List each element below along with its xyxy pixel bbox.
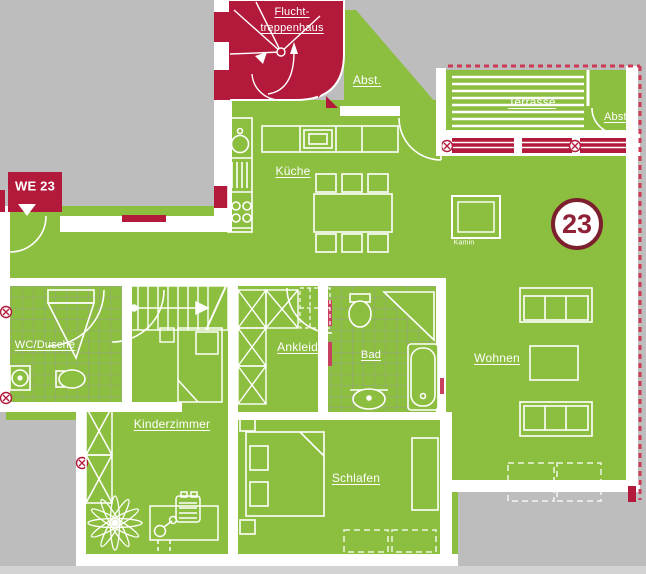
floorplan-drawing bbox=[0, 0, 646, 574]
label-fireplace: Kamin bbox=[454, 240, 475, 247]
toilet bbox=[59, 370, 85, 388]
label-stairwell-line1: Flucht- bbox=[274, 6, 309, 18]
label-bedroom: Schlafen bbox=[332, 471, 380, 485]
label-bathroom: Bad bbox=[361, 349, 381, 361]
label-unit-entrance: WE 23 bbox=[15, 179, 55, 194]
label-storage-upper: Abst. bbox=[353, 73, 381, 87]
unit-number-badge: 23 bbox=[551, 198, 603, 250]
label-stairwell-line2: treppenhaus bbox=[260, 22, 323, 34]
label-storage-terrace: Abst. bbox=[604, 111, 630, 123]
label-terrace: Terrasse bbox=[508, 95, 556, 109]
label-childrens-room: Kinderzimmer bbox=[134, 417, 210, 431]
outside-light-strip bbox=[0, 566, 646, 574]
label-dressing: Ankleide bbox=[277, 340, 325, 354]
toilet bbox=[349, 301, 371, 327]
label-wc-shower: WC/Dusche bbox=[15, 339, 75, 351]
floorplan: Flucht- treppenhaus Abst. Terrasse Abst.… bbox=[0, 0, 646, 574]
label-kitchen: Küche bbox=[275, 164, 310, 178]
terrace-windows bbox=[452, 138, 626, 153]
label-living: Wohnen bbox=[474, 351, 520, 365]
